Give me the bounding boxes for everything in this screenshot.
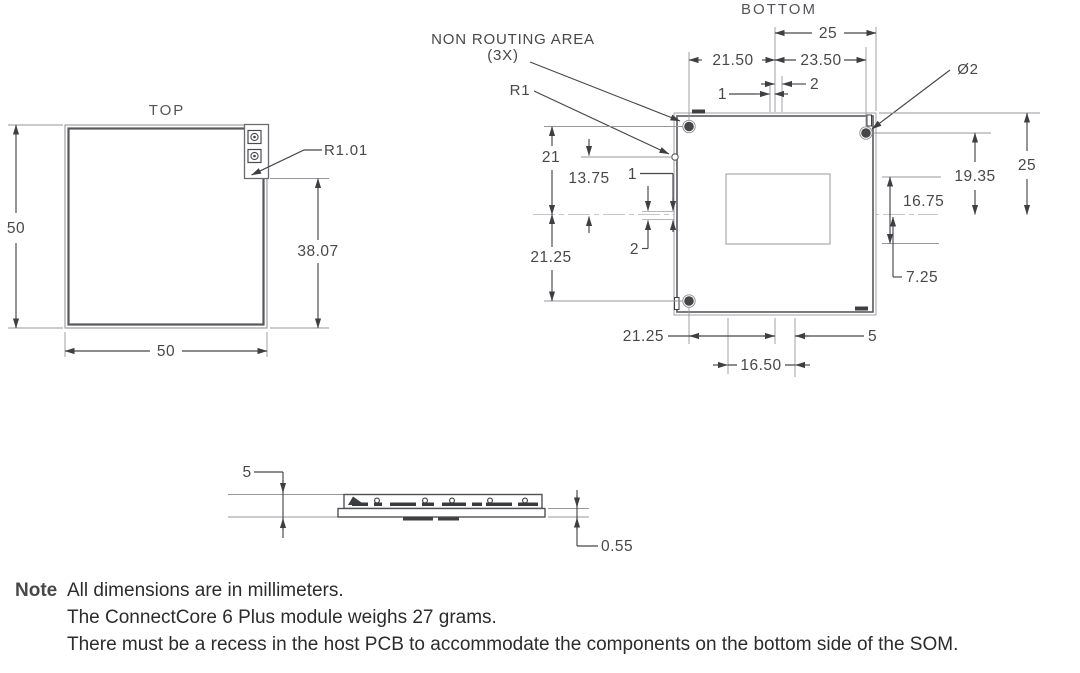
mechanical-drawing-page: TOP 50 50 38.07 R1.01 BOTTOM NON ROUTING…: [0, 0, 1080, 673]
note-block: Note All dimensions are in millimeters. …: [15, 580, 958, 655]
dim-bottom-25: 25: [819, 25, 837, 42]
bottom-component: [403, 517, 433, 521]
bottom-view-title: BOTTOM: [741, 1, 817, 18]
dim-bottom-21-50: 21.50: [712, 52, 753, 69]
dim-right-16-75: 16.75: [903, 193, 944, 210]
dim-right-19-35: 19.35: [954, 168, 995, 185]
dim-left-21: 21: [542, 149, 560, 166]
dim-top-width: 50: [157, 343, 175, 360]
callout-corner-radius: R1.01: [324, 142, 368, 159]
dim-bottom-21-25: 21.25: [623, 328, 664, 345]
callout-edge-radius: R1: [510, 82, 531, 99]
side-view: [228, 495, 589, 521]
dim-bottom-23-50: 23.50: [800, 52, 841, 69]
callout-non-routing-qty: (3X): [487, 47, 519, 64]
dim-bottom-1: 1: [718, 86, 727, 103]
note-line: There must be a recess in the host PCB t…: [67, 634, 958, 655]
dim-bottom-16-50: 16.50: [740, 357, 781, 374]
bottom-view-board: [533, 110, 938, 316]
dim-left-21-25: 21.25: [530, 249, 571, 266]
side-components-block: [344, 495, 542, 509]
bottom-component: [438, 518, 459, 521]
note-line: The ConnectCore 6 Plus module weighs 27 …: [67, 607, 497, 628]
dim-right-7-25: 7.25: [906, 269, 938, 286]
note-line: All dimensions are in millimeters.: [67, 580, 344, 601]
dimension-drawing: TOP 50 50 38.07 R1.01 BOTTOM NON ROUTING…: [0, 0, 1080, 673]
dim-top-height: 50: [7, 220, 25, 237]
dim-side-height: 5: [242, 464, 251, 481]
dim-left-2: 2: [630, 241, 639, 258]
note-label: Note: [15, 580, 57, 601]
dim-bottom-2: 2: [810, 76, 819, 93]
bottom-view-keepout-window: [726, 174, 830, 244]
dim-right-25: 25: [1018, 157, 1036, 174]
dim-side-pcb-thickness: 0.55: [601, 538, 633, 555]
dim-top-notch-height: 38.07: [297, 243, 338, 260]
edge-radius-notch: [672, 154, 678, 160]
dim-bottom-5: 5: [868, 328, 877, 345]
callout-hole-diameter: Ø2: [957, 61, 979, 78]
callout-non-routing: NON ROUTING AREA: [431, 31, 595, 48]
top-view-board: [65, 121, 270, 328]
dim-left-1: 1: [628, 166, 637, 183]
side-pcb: [338, 509, 545, 518]
top-view-title: TOP: [149, 102, 186, 119]
dim-left-13-75: 13.75: [568, 170, 609, 187]
